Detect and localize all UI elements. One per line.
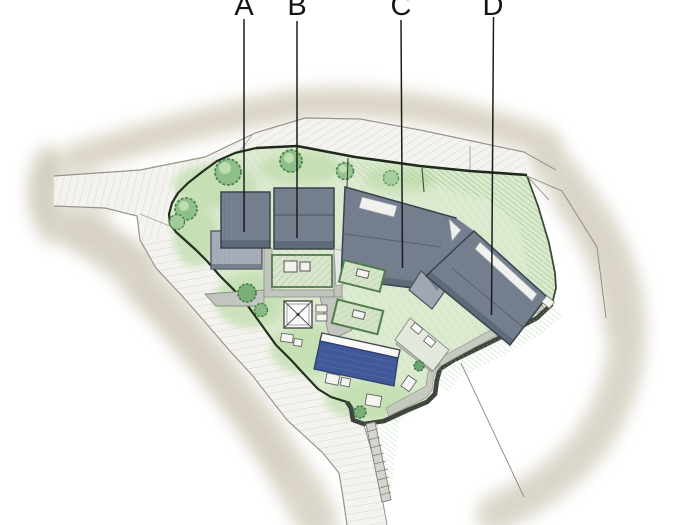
svg-text:A: A	[234, 0, 254, 22]
svg-text:C: C	[391, 0, 412, 22]
svg-text:B: B	[287, 0, 306, 22]
